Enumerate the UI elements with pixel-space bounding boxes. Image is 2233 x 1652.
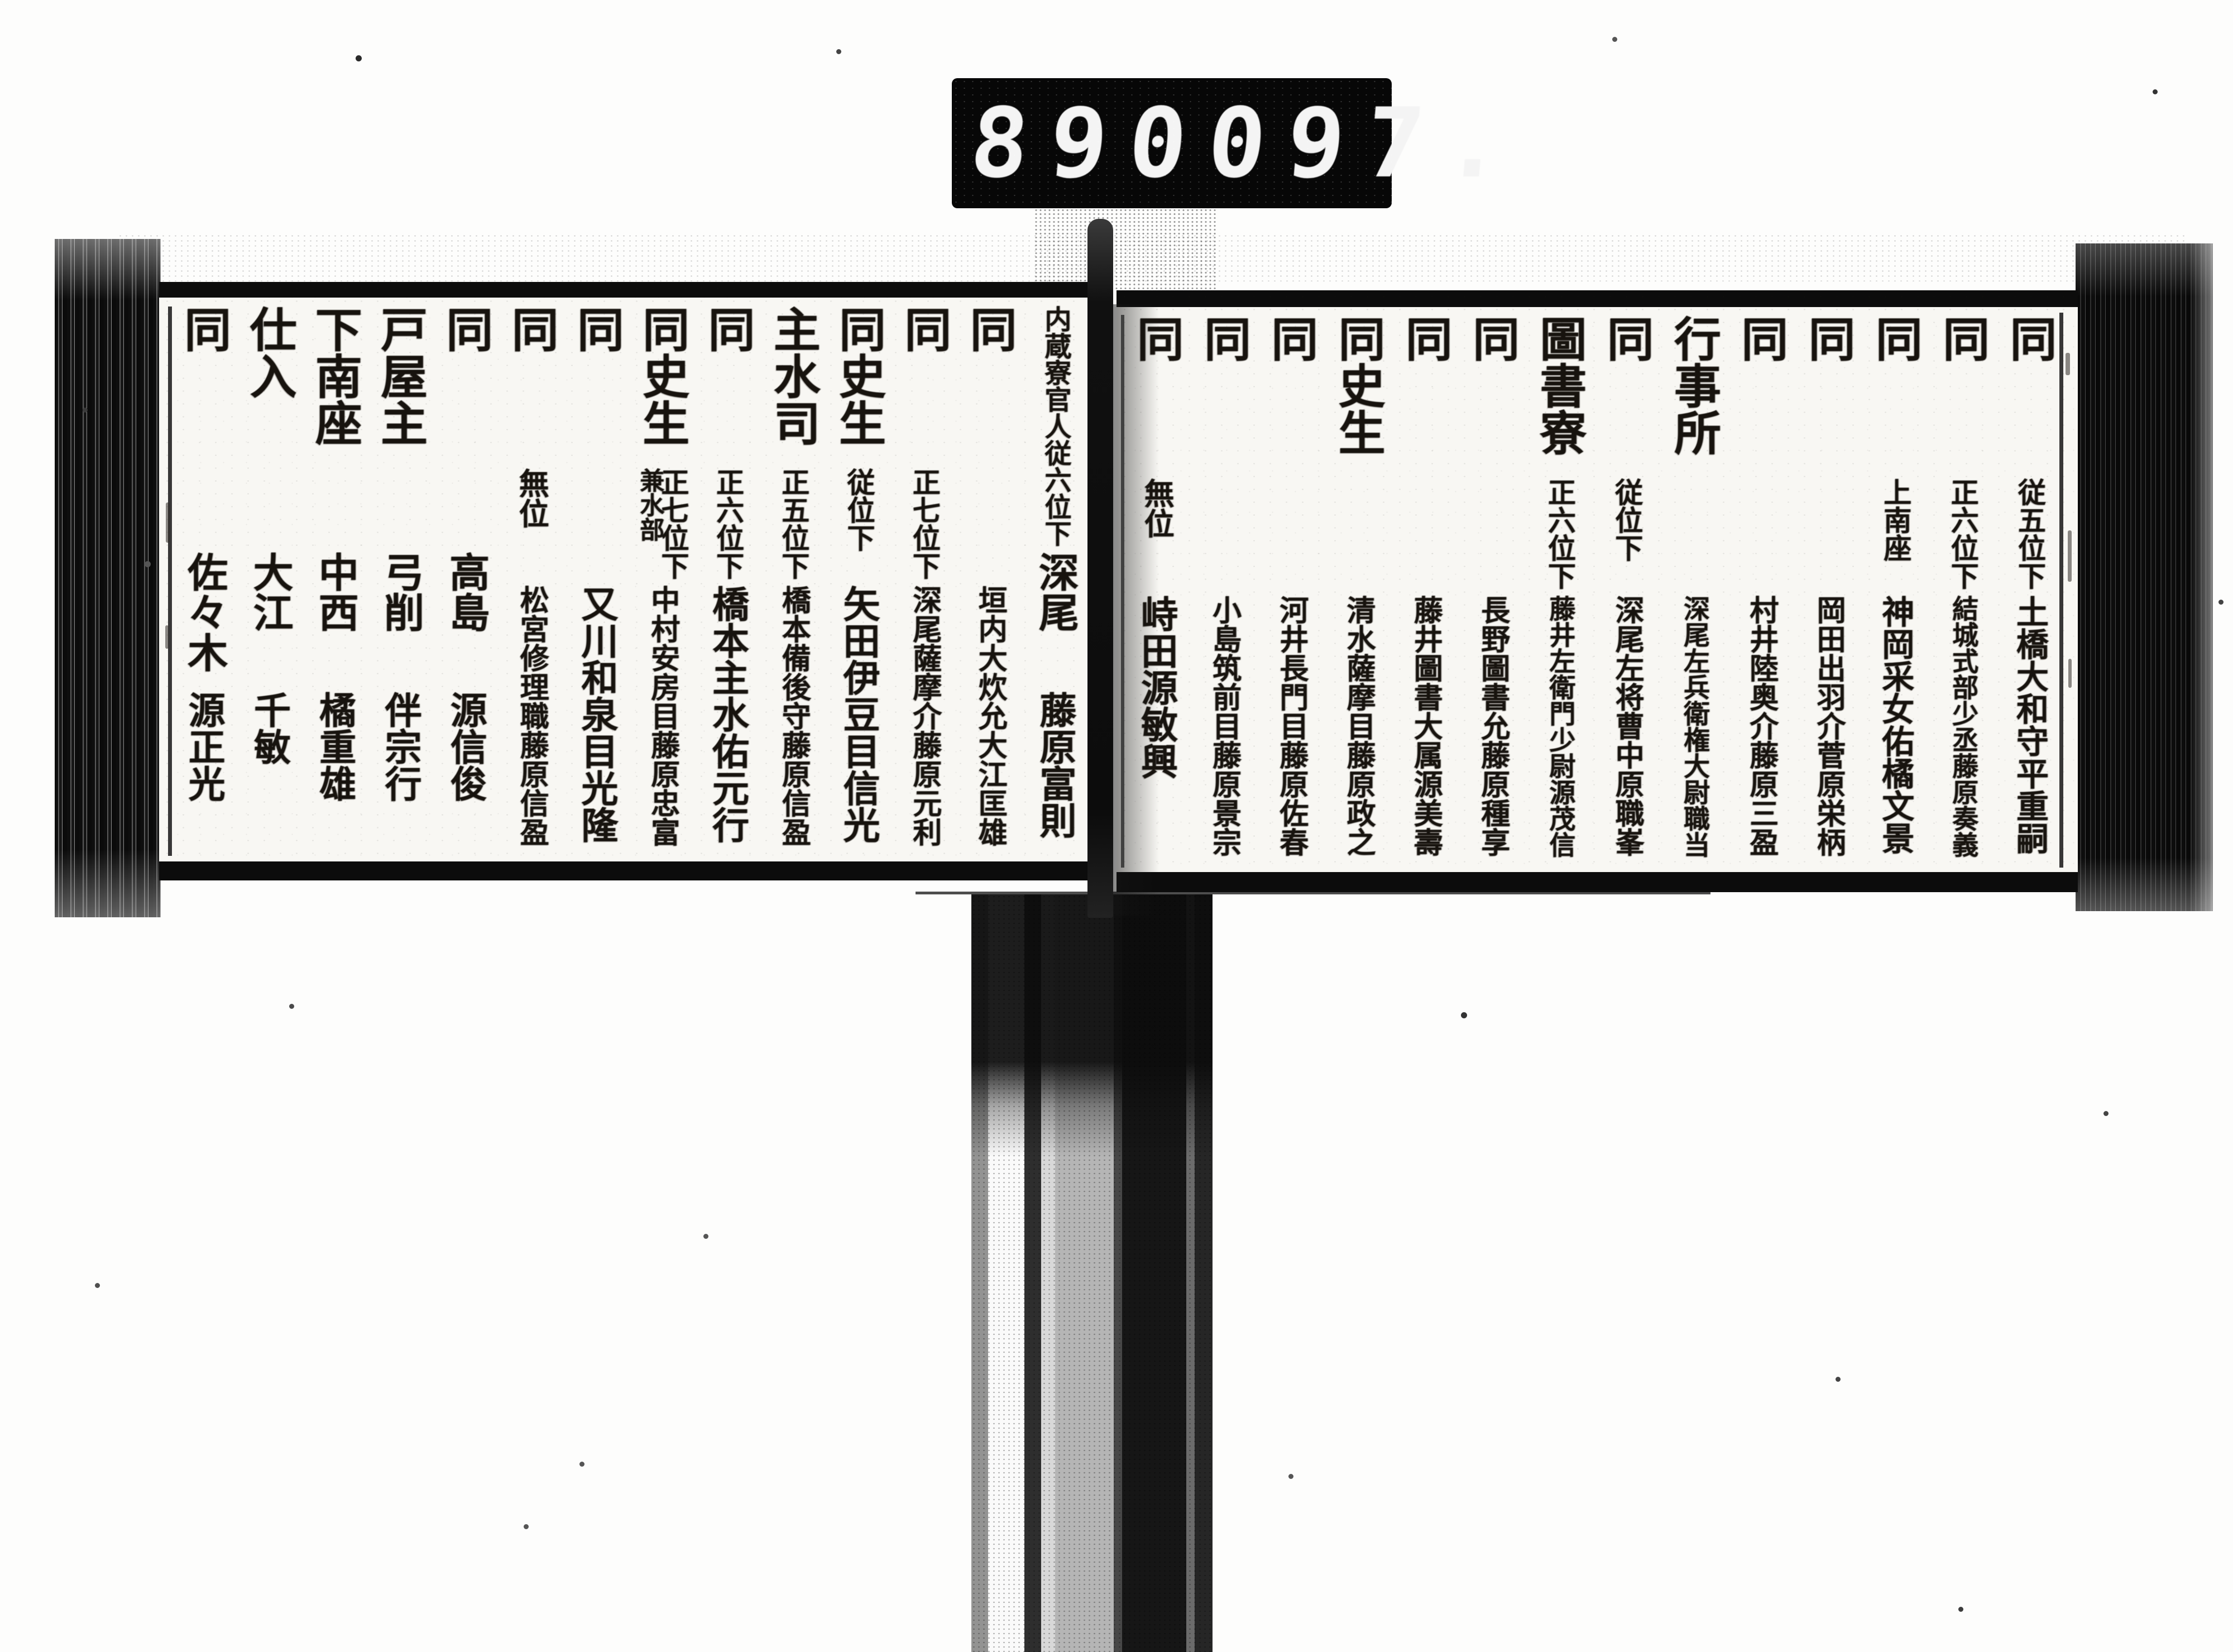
office-label: 同 [705,305,751,352]
office-label: 同 [1268,315,1315,362]
rank-label: 正五位下 [779,468,807,580]
margin-smudge [165,625,169,649]
office-label: 主水司 [770,305,817,446]
text-column: 同史生清水薩摩目藤原政之 [1325,310,1392,869]
photocopy-noise-dots [0,0,3,3]
rank-label: 従位下 [1613,478,1641,562]
office-label: 同 [1738,315,1785,362]
text-column: 下南座中西橘重雄 [303,301,368,858]
text-column: 同長野圖書允藤原種享 [1459,310,1526,869]
person-name: 中村安房目藤原忠富 [648,585,677,846]
office-label: 同 [443,305,490,352]
text-column: 同佐々木源正光 [171,301,237,858]
text-column: 圖書寮正六位下藤井左衛門少尉源茂信 [1526,310,1593,869]
person-given-name: 橘重雄 [317,691,353,802]
text-column: 戸屋主弓削伴宗行 [368,301,433,858]
rank-label: 上南座 [1881,478,1909,562]
text-column: 同史生正七位下兼水部中村安房目藤原忠富 [630,301,695,858]
person-surname: 高島 [446,552,486,632]
margin-smudge [166,502,170,543]
person-name: 松宮修理職藤原信盈 [517,585,546,846]
book-fore-edge-right [2076,243,2213,911]
text-column: 同藤井圖書大属源美壽 [1392,310,1459,869]
person-name: 又川和泉目光隆 [578,585,615,843]
person-name: 神岡采女佑橘文景 [1879,595,1911,854]
person-name: 藤井左衛門少尉源茂信 [1546,595,1573,858]
office-label: 同 [508,305,555,352]
right-page: 同従五位下土橋大和守平重嗣同正六位下結城式部少丞藤原奏義同上南座神岡采女佑橘文景… [1116,290,2078,892]
margin-smudge [2068,659,2072,688]
left-page: 内蔵寮官人従六位下深尾藤原富則同垣内大炊允大江匡雄同正七位下深尾薩摩介藤原元利同… [159,282,1092,880]
person-name: 岡田出羽介菅原栄柄 [1814,595,1843,856]
text-column: 仕入大江千敏 [237,301,302,858]
office-label: 同 [2006,315,2053,362]
person-name: 結城式部少丞藤原奏義 [1949,595,1976,858]
rank-label: 正六位下 [714,468,742,580]
person-name: 小島筑前目藤原景宗 [1209,595,1238,856]
person-surname: 大江 [250,552,290,632]
person-name: 藤井圖書大属源美壽 [1411,595,1440,856]
text-column: 同正七位下深尾薩摩介藤原元利 [892,301,957,858]
person-given-name: 伴宗行 [382,691,419,802]
person-surname: 深尾 [1035,552,1075,632]
office-label: 同 [901,305,948,352]
person-name: 土橋大和守平重嗣 [2014,595,2046,854]
text-column: 同高島源信俊 [433,301,499,858]
office-label: 戸屋主 [377,305,424,446]
right-page-columns: 同従五位下土橋大和守平重嗣同正六位下結城式部少丞藤原奏義同上南座神岡采女佑橘文景… [1123,310,2063,869]
margin-smudge [2068,530,2072,582]
person-given-name: 源正光 [186,691,223,802]
person-name: 深尾薩摩介藤原元利 [910,585,939,846]
person-name: 橋本主水佑元行 [710,585,746,843]
person-given-name: 藤原富則 [1037,691,1074,839]
office-label: 仕入 [246,305,293,399]
text-column: 同従位下深尾左将曹中原職峯 [1593,310,1660,869]
office-label: 同 [1402,315,1449,362]
office-label: 同 [573,305,620,352]
stand-pole [971,894,1213,1652]
text-column: 同岡田出羽介菅原栄柄 [1795,310,1862,869]
office-label: 同史生 [639,305,686,446]
rank-label: 正六位下 [1949,478,1977,590]
person-name: 矢田伊豆目信光 [841,585,878,843]
person-name: 橋本備後守藤原信盈 [779,585,808,846]
office-label: 同 [1603,315,1650,362]
book-fore-edge-left [55,239,161,917]
microfilm-scan: 890 097. 内蔵寮官人従六位下深尾藤原富則同垣内大炊允大江匡雄同正七位下深… [0,0,2233,1652]
rank-label: 無位 [516,468,547,528]
binding-top-shadow [1034,197,1218,290]
person-name: 深尾左兵衛権大尉職当 [1681,595,1707,858]
binding-shadow [1113,304,1159,916]
office-label: 同 [1200,315,1247,362]
rank-label: 従五位下 [2016,478,2044,590]
office-label: 同 [1805,315,1852,362]
rank-label: 正六位下 [1546,478,1574,590]
person-name: 深尾左将曹中原職峯 [1612,595,1641,856]
margin-smudge [2066,353,2070,375]
frame-counter-display: 890 097. [952,78,1392,208]
counter-right-digits: 097. [1204,95,1528,191]
office-label: 同 [966,305,1013,352]
rank-label: 従位下 [845,468,873,552]
person-name: 長野圖書允藤原種享 [1478,595,1507,856]
text-column: 同上南座神岡采女佑橘文景 [1862,310,1929,869]
office-label: 同 [1872,315,1919,362]
text-column: 同又川和泉目光隆 [564,301,630,858]
text-column: 同村井陸奥介藤原三盈 [1728,310,1795,869]
office-label: 同 [181,305,228,352]
person-surname: 弓削 [381,552,421,632]
text-column: 内蔵寮官人従六位下深尾藤原富則 [1023,301,1088,858]
office-label: 行事所 [1670,315,1717,456]
text-column: 同正六位下橋本主水佑元行 [695,301,760,858]
person-name: 清水薩摩目藤原政之 [1344,595,1373,856]
text-column: 行事所深尾左兵衛権大尉職当 [1660,310,1727,869]
office-label: 同 [1469,315,1516,362]
text-column: 同従五位下土橋大和守平重嗣 [1996,310,2063,869]
person-given-name: 千敏 [251,691,288,765]
text-column: 同正六位下結城式部少丞藤原奏義 [1929,310,1996,869]
person-surname: 佐々木 [184,552,224,672]
counter-left-digits: 890 [966,95,1212,191]
left-page-columns: 内蔵寮官人従六位下深尾藤原富則同垣内大炊允大江匡雄同正七位下深尾薩摩介藤原元利同… [171,301,1088,858]
text-column: 同河井長門目藤原佐春 [1258,310,1325,869]
office-label: 内蔵寮官人従六位下 [1042,305,1068,547]
binding-gap [1087,219,1113,918]
text-column: 同垣内大炊允大江匡雄 [957,301,1022,858]
text-column: 同史生従位下矢田伊豆目信光 [826,301,892,858]
rank-label: 正七位下 [911,468,938,580]
office-label: 同史生 [836,305,883,446]
office-label: 同 [1939,315,1986,362]
person-name: 河井長門目藤原佐春 [1277,595,1306,856]
office-label: 圖書寮 [1536,315,1583,456]
office-label: 下南座 [312,305,358,446]
office-label: 同史生 [1335,315,1382,456]
text-column: 同小島筑前目藤原景宗 [1190,310,1257,869]
rank-secondary-label: 兼水部 [637,468,662,542]
person-name: 垣内大炊允大江匡雄 [975,585,1004,846]
person-name: 村井陸奥介藤原三盈 [1747,595,1776,856]
text-column: 同無位松宮修理職藤原信盈 [499,301,564,858]
person-surname: 中西 [315,552,355,632]
person-given-name: 源信俊 [448,691,485,802]
text-column: 主水司正五位下橋本備後守藤原信盈 [761,301,826,858]
